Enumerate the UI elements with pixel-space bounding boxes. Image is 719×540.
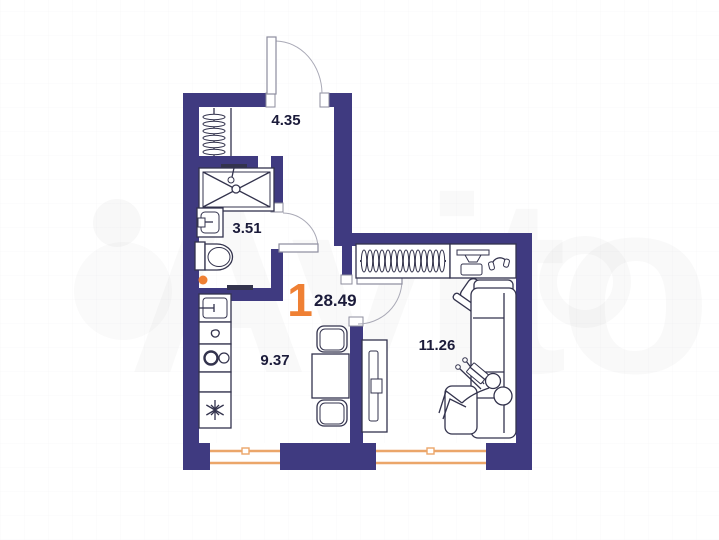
towel-rail bbox=[227, 285, 253, 290]
burner bbox=[219, 353, 229, 363]
tv-console bbox=[362, 340, 387, 432]
window-opening bbox=[376, 443, 486, 470]
pillow bbox=[494, 387, 512, 405]
shower-head bbox=[228, 177, 234, 183]
total-area-label: 28.49 bbox=[314, 291, 357, 310]
kitchen-area-label: 9.37 bbox=[260, 352, 289, 369]
room-count-label: 1 bbox=[287, 274, 313, 326]
avito-watermark: Avito bbox=[74, 146, 704, 425]
living-area-label: 11.26 bbox=[419, 337, 456, 354]
door-jamb bbox=[349, 317, 363, 326]
desk-with-monitor-and-headphones bbox=[450, 244, 516, 278]
shower-handle bbox=[221, 164, 247, 168]
kitchen-sink bbox=[199, 294, 231, 322]
orange-marker-dot bbox=[199, 276, 208, 285]
window-opening bbox=[210, 443, 280, 470]
tv-mount bbox=[371, 379, 382, 393]
floor-plan: Avito bbox=[0, 0, 719, 540]
wall-bottom-right-corner bbox=[486, 443, 532, 470]
wall-bottom-left-corner bbox=[183, 443, 210, 470]
dining-set bbox=[312, 326, 349, 426]
door-swing-arc bbox=[276, 41, 322, 93]
floor-plan-canvas: Avito bbox=[0, 0, 719, 540]
chair bbox=[317, 400, 347, 426]
wall-left bbox=[183, 93, 199, 470]
hallway-area-label: 4.35 bbox=[271, 112, 300, 129]
kitchen-counter bbox=[199, 322, 231, 344]
fridge-snowflake bbox=[199, 392, 231, 428]
dining-table bbox=[312, 354, 349, 398]
kitchen-window bbox=[210, 443, 280, 470]
window-handle bbox=[427, 448, 434, 454]
basin-faucet bbox=[198, 218, 205, 227]
door-jamb bbox=[266, 93, 275, 107]
door-jamb bbox=[320, 93, 329, 107]
toilet bbox=[195, 242, 233, 270]
door-leaf bbox=[279, 244, 318, 252]
door-leaf bbox=[267, 37, 276, 94]
chair bbox=[317, 326, 347, 352]
door-jamb bbox=[341, 275, 352, 284]
window-handle bbox=[242, 448, 249, 454]
kitchen-counter bbox=[199, 372, 231, 392]
cooktop bbox=[199, 344, 231, 372]
wardrobe-hangers bbox=[356, 244, 450, 278]
wall-right bbox=[516, 233, 532, 470]
wall-hall-top bbox=[183, 93, 270, 107]
kitchen-units bbox=[199, 294, 231, 428]
wall-hall-right bbox=[334, 93, 352, 245]
entrance-door bbox=[266, 37, 329, 107]
laptop-icon bbox=[461, 264, 482, 275]
toilet-tank bbox=[195, 242, 205, 270]
monitor-icon bbox=[457, 250, 489, 255]
wall-kitchen-living-divider bbox=[350, 318, 363, 458]
bathroom-area-label: 3.51 bbox=[232, 220, 261, 237]
wall-bottom-middle-pier bbox=[280, 443, 376, 470]
washbasin bbox=[197, 208, 223, 237]
living-window bbox=[376, 443, 486, 470]
burner bbox=[205, 352, 218, 365]
shower-tray bbox=[199, 164, 274, 211]
